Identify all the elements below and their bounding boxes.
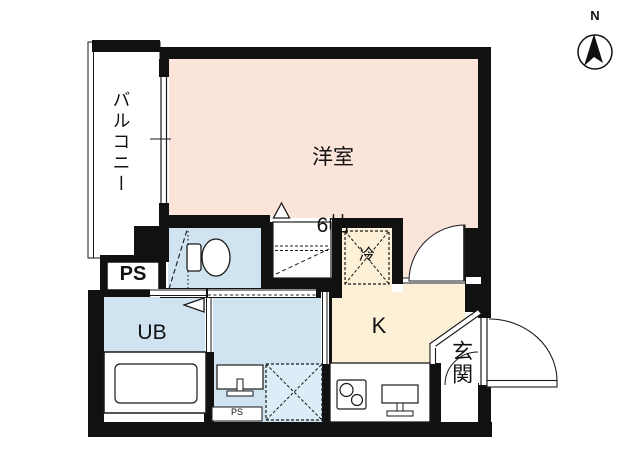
western-room-name: 洋室: [283, 147, 383, 170]
washer-space: [266, 364, 322, 420]
unit-bath-label: UB: [130, 322, 174, 345]
pipe-space-label: PS: [107, 264, 159, 286]
balcony-window: [158, 77, 169, 203]
wall-right-mid: [478, 228, 491, 318]
wall-window-top: [159, 59, 169, 77]
western-room-label: 洋室 6帖: [283, 102, 383, 261]
bathtub-icon: [104, 352, 206, 413]
refrigerator-label: 冷: [358, 247, 376, 264]
wall-top: [160, 47, 491, 59]
stove-icon: [337, 380, 366, 409]
balcony-label: バルコニー: [110, 90, 129, 195]
entrance-label: 玄関: [449, 340, 472, 386]
compass-north-label: N: [586, 9, 604, 23]
kitchen-floor-strip: [403, 284, 465, 292]
entrance-door-leaf-open: [487, 381, 557, 388]
kitchen-label: K: [366, 314, 392, 338]
wall-entrance-left: [429, 363, 441, 422]
wall-toilet-top: [160, 215, 270, 228]
entrance-door-swing-outer: [489, 319, 557, 381]
wall-balcony-top: [92, 40, 160, 52]
pillar-sill: [466, 277, 481, 284]
kitchen-sink-icon: [382, 385, 418, 416]
western-room-size: 6帖: [283, 215, 383, 238]
wall-nook-right: [392, 228, 403, 284]
wall-bottom: [88, 422, 492, 437]
wall-right-upper: [478, 47, 491, 228]
wall-right-lower: [478, 383, 491, 422]
wall-door-pillar: [465, 228, 478, 312]
toilet-icon: [187, 239, 230, 276]
pipe-space-2-label: PS: [212, 408, 262, 418]
floor-plan: バルコニー 洋室 6帖 PS UB 冷 K 玄関 PS N: [0, 0, 640, 469]
wall-left: [88, 290, 104, 437]
compass-icon: [578, 34, 612, 69]
